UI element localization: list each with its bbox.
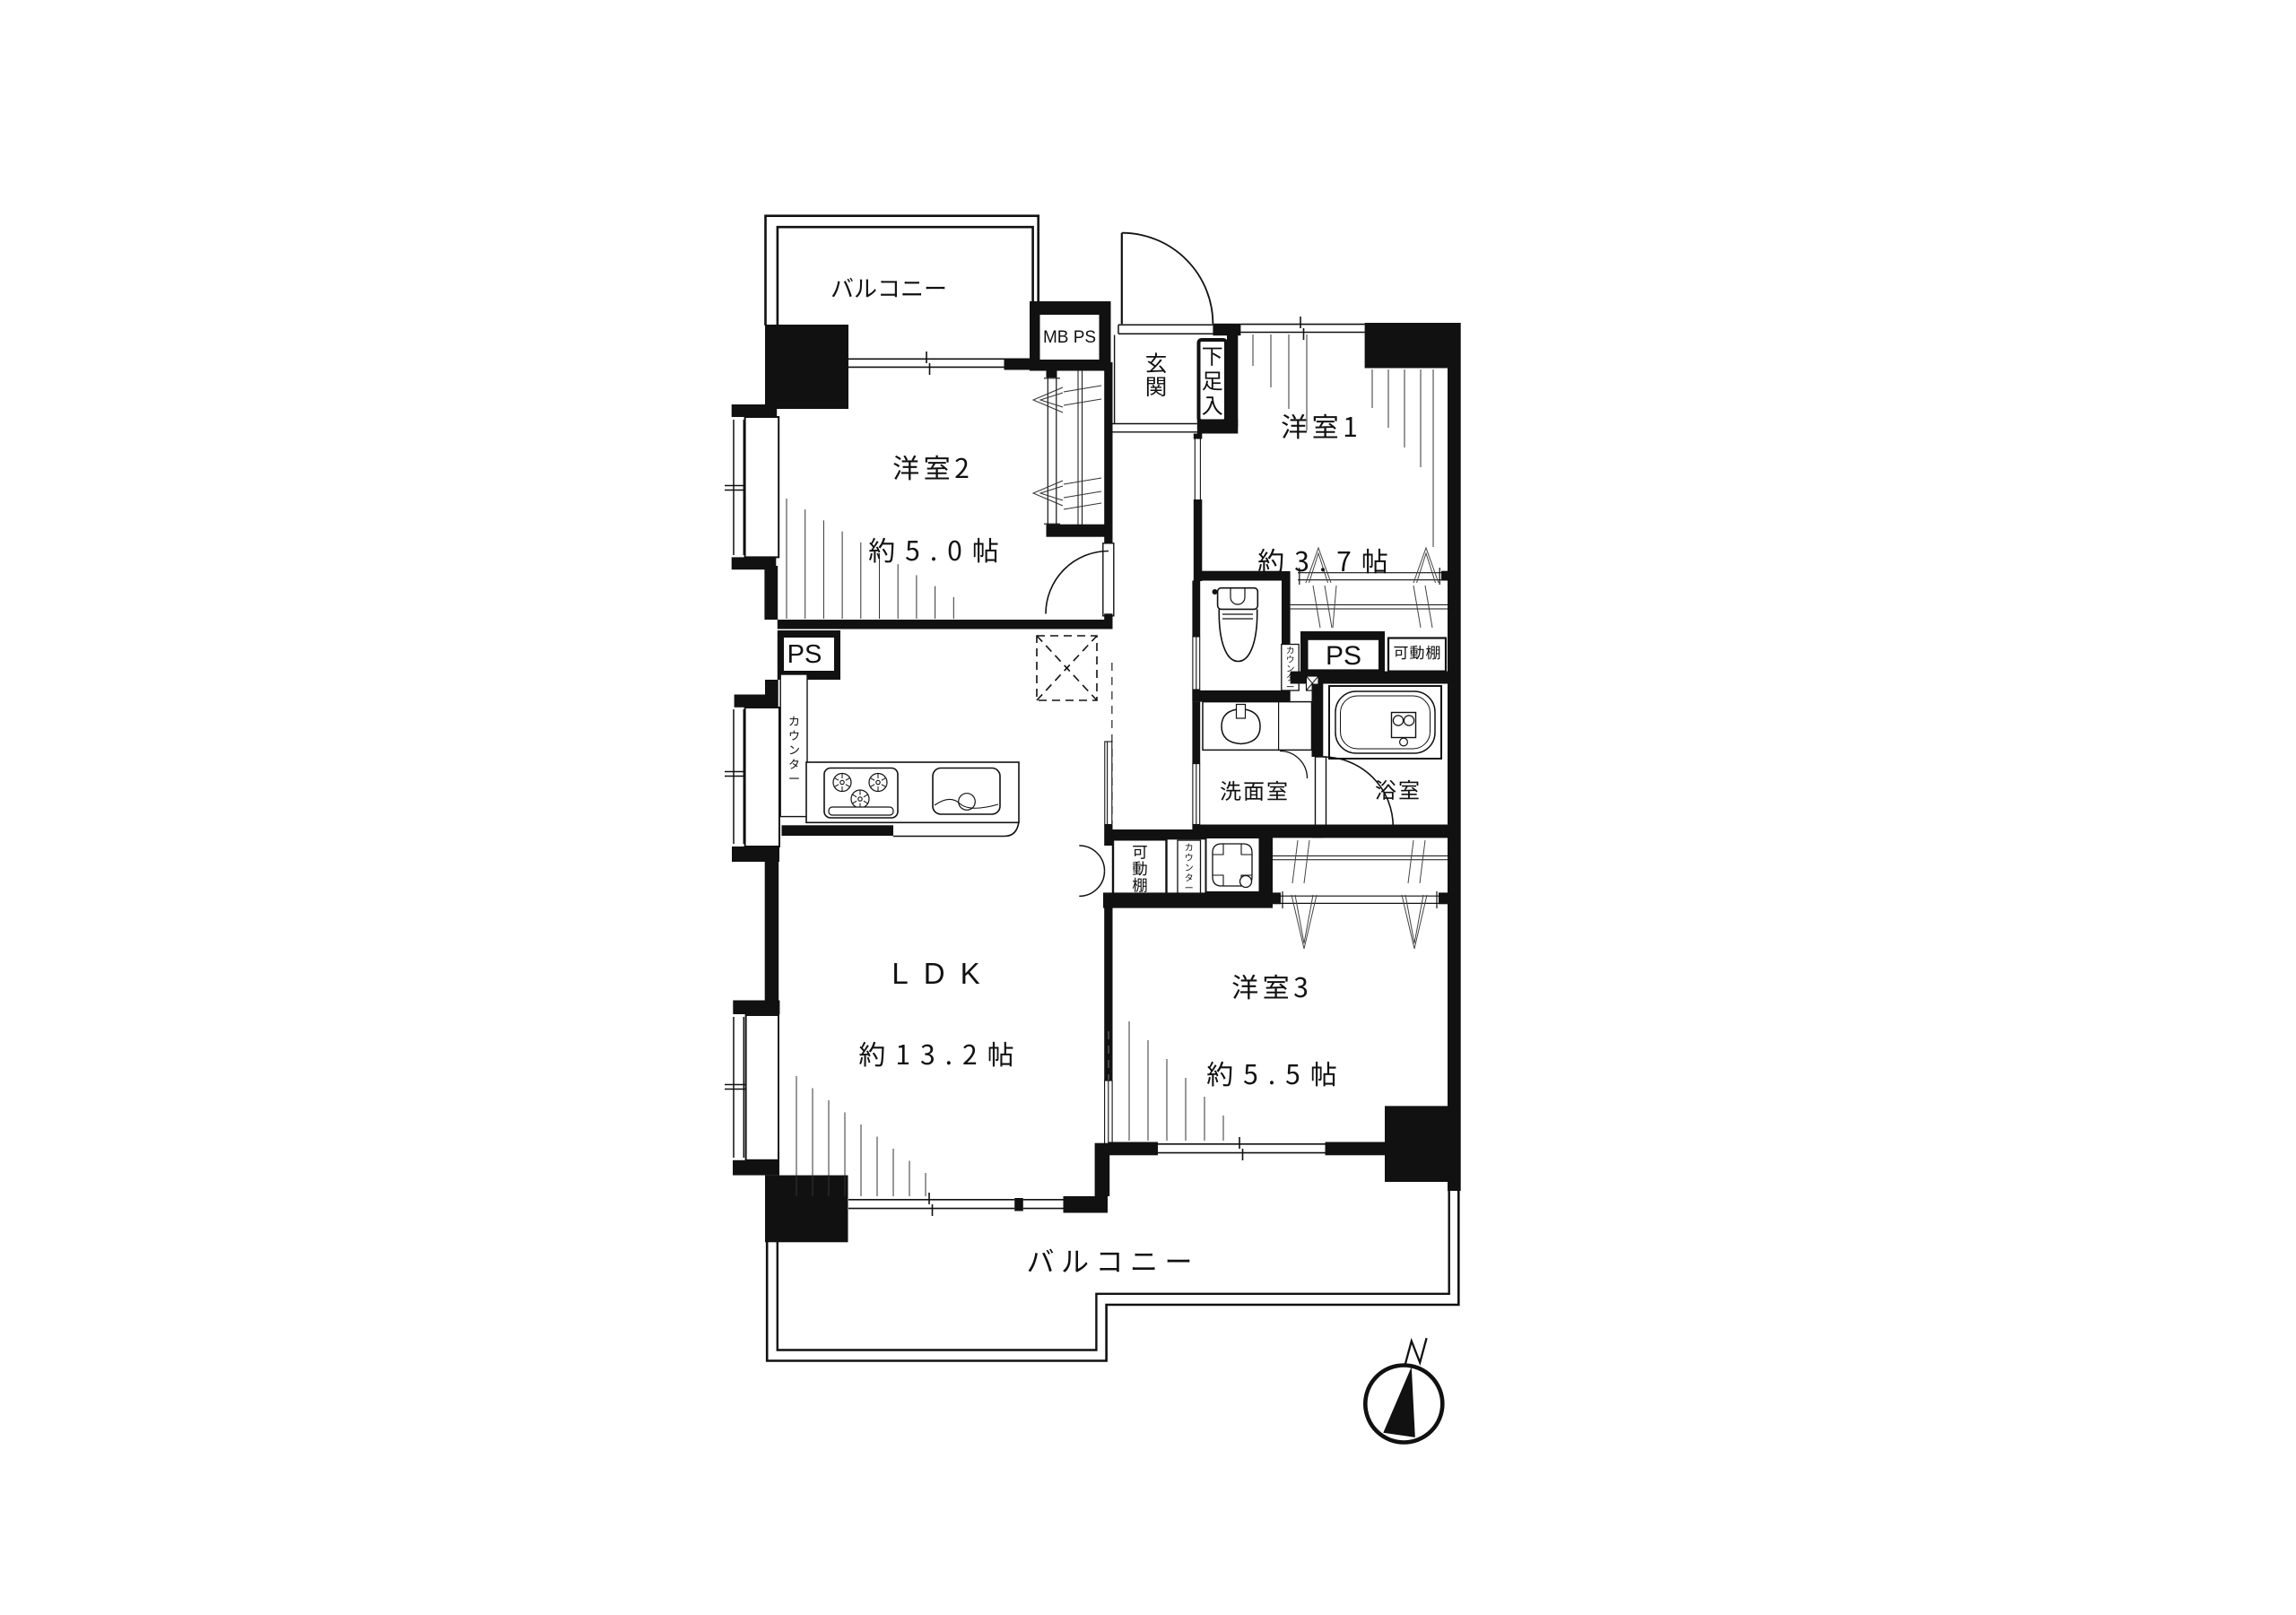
svg-text:PS: PS <box>787 640 822 669</box>
svg-text:LDK: LDK <box>891 957 995 990</box>
svg-text:PS: PS <box>1326 641 1361 671</box>
svg-text:MB PS: MB PS <box>1043 328 1096 347</box>
